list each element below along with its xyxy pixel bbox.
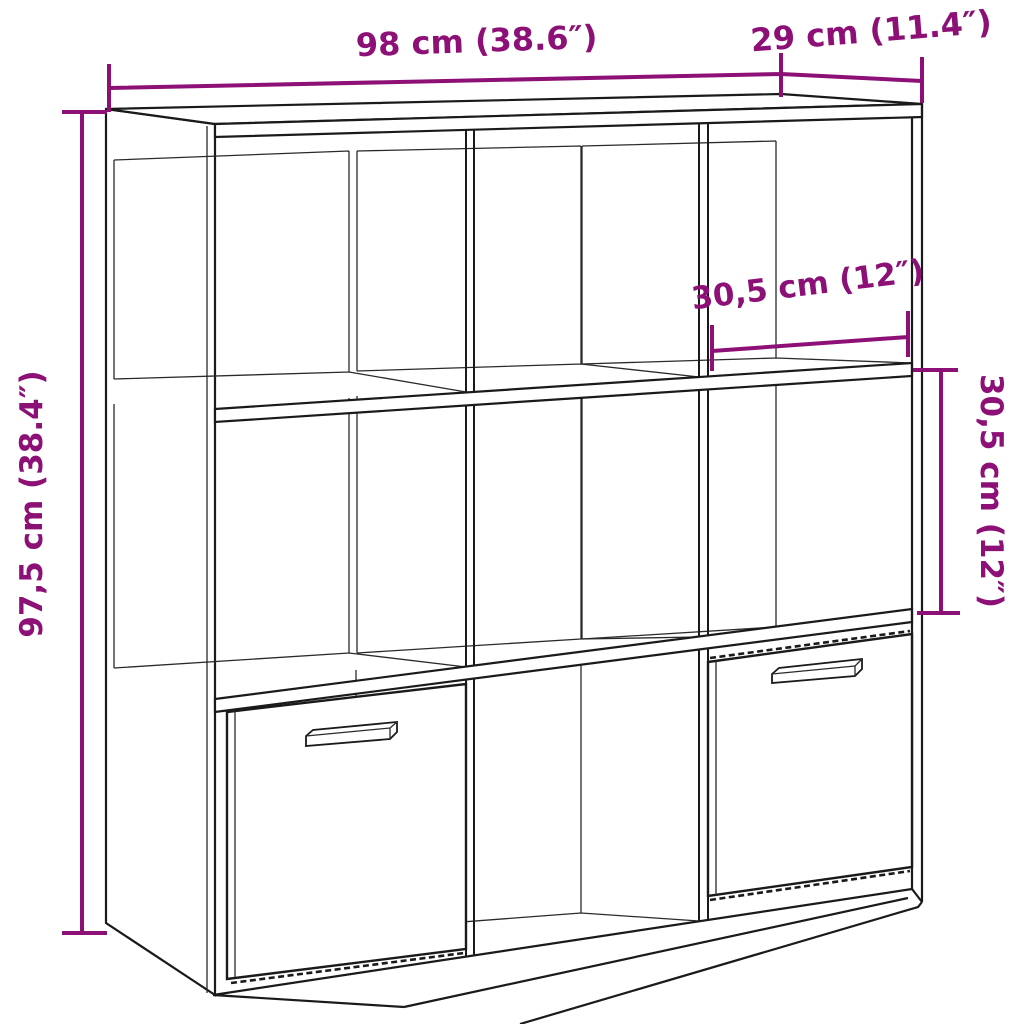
bookcase-diagram-svg: 98 cm (38.6″) 29 cm (11.4″) 30,5 cm (12″… bbox=[0, 0, 1024, 1024]
overall-depth-dimension: 29 cm (11.4″) bbox=[749, 3, 993, 103]
dimension-diagram: 98 cm (38.6″) 29 cm (11.4″) 30,5 cm (12″… bbox=[0, 0, 1024, 1024]
partitions bbox=[466, 123, 708, 957]
overall-height-label: 97,5 cm (38.4″) bbox=[14, 370, 50, 637]
compartment-width-label: 30,5 cm (12″) bbox=[689, 253, 926, 317]
overall-height-dimension: 97,5 cm (38.4″) bbox=[14, 112, 107, 933]
right-side-edges bbox=[912, 104, 922, 902]
compartment-height-label: 30,5 cm (12″) bbox=[973, 374, 1009, 608]
compartment-width-dimension: 30,5 cm (12″) bbox=[689, 253, 926, 371]
bookcase-drawing bbox=[106, 94, 922, 1024]
left-side-panel bbox=[106, 109, 215, 995]
shelf-1 bbox=[215, 363, 912, 422]
left-drawer bbox=[227, 684, 466, 983]
overall-width-label: 98 cm (38.6″) bbox=[355, 18, 598, 64]
right-drawer bbox=[708, 631, 912, 900]
overall-depth-label: 29 cm (11.4″) bbox=[749, 3, 993, 60]
compartment-height-dimension: 30,5 cm (12″) bbox=[913, 370, 1009, 613]
